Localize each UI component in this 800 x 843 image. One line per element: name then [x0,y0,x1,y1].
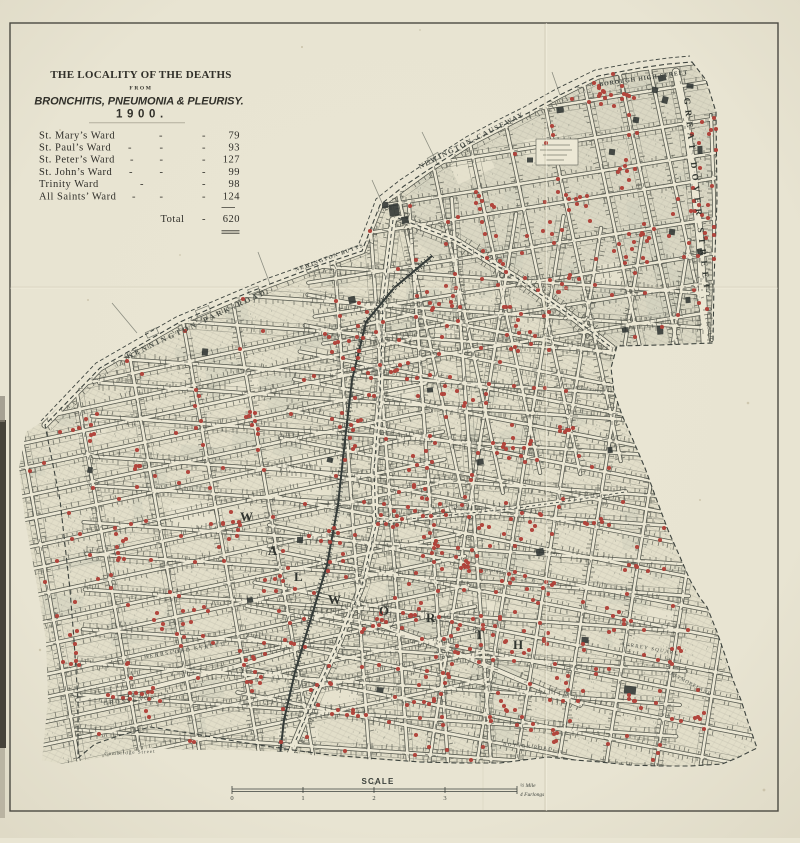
svg-text:99: 99 [229,167,241,178]
svg-text:FROM: FROM [129,86,152,92]
svg-text:THE LOCALITY OF THE DEATHS: THE LOCALITY OF THE DEATHS [50,69,231,81]
svg-text:-: - [140,179,144,190]
svg-text:-: - [160,143,164,154]
svg-text:-: - [160,192,164,203]
svg-text:4 Furlongs: 4 Furlongs [520,791,544,798]
svg-text:124: 124 [223,192,241,203]
svg-text:-: - [202,192,206,203]
svg-text:2: 2 [372,795,375,802]
svg-text:W: W [328,592,341,607]
svg-text:L: L [294,569,303,584]
svg-text:-: - [160,167,164,178]
svg-text:R: R [426,610,436,625]
svg-text:127: 127 [223,155,240,166]
svg-text:620: 620 [223,214,240,225]
svg-text:98: 98 [229,179,241,190]
svg-text:-: - [160,155,164,166]
svg-text:All Saints’ Ward: All Saints’ Ward [39,192,117,203]
svg-text:¼: ¼ [372,781,376,787]
svg-text:½ Mile: ½ Mile [520,782,536,789]
svg-text:BRONCHITIS, PNEUMONIA & PLEURI: BRONCHITIS, PNEUMONIA & PLEURISY. [34,95,243,107]
svg-text:A: A [268,543,278,558]
svg-text:-: - [129,167,133,178]
svg-text:O: O [379,603,389,618]
svg-text:-: - [128,143,132,154]
svg-text:-: - [202,214,206,225]
svg-text:Total: Total [161,214,185,225]
svg-text:St. Paul’s Ward: St. Paul’s Ward [39,143,111,154]
svg-text:-: - [202,179,206,190]
svg-text:H: H [513,637,523,652]
svg-text:SCALE: SCALE [361,777,394,786]
svg-text:St. John’s Ward: St. John’s Ward [39,167,113,178]
svg-text:93: 93 [229,143,241,154]
svg-text:-: - [130,155,134,166]
svg-text:-: - [132,192,136,203]
svg-text:0: 0 [230,795,233,802]
svg-text:3: 3 [443,795,446,802]
svg-text:W: W [240,509,253,524]
svg-text:-: - [202,143,206,154]
svg-text:1: 1 [301,795,304,802]
svg-text:-: - [159,131,163,142]
svg-text:1900.: 1900. [116,109,168,121]
svg-text:-: - [202,131,206,142]
svg-text:-: - [202,167,206,178]
svg-text:St. Mary’s Ward: St. Mary’s Ward [39,131,115,142]
svg-text:Trinity Ward: Trinity Ward [39,179,99,190]
svg-text:-: - [202,155,206,166]
svg-text:79: 79 [229,131,241,142]
svg-text:St. Peter’s Ward: St. Peter’s Ward [39,155,115,166]
